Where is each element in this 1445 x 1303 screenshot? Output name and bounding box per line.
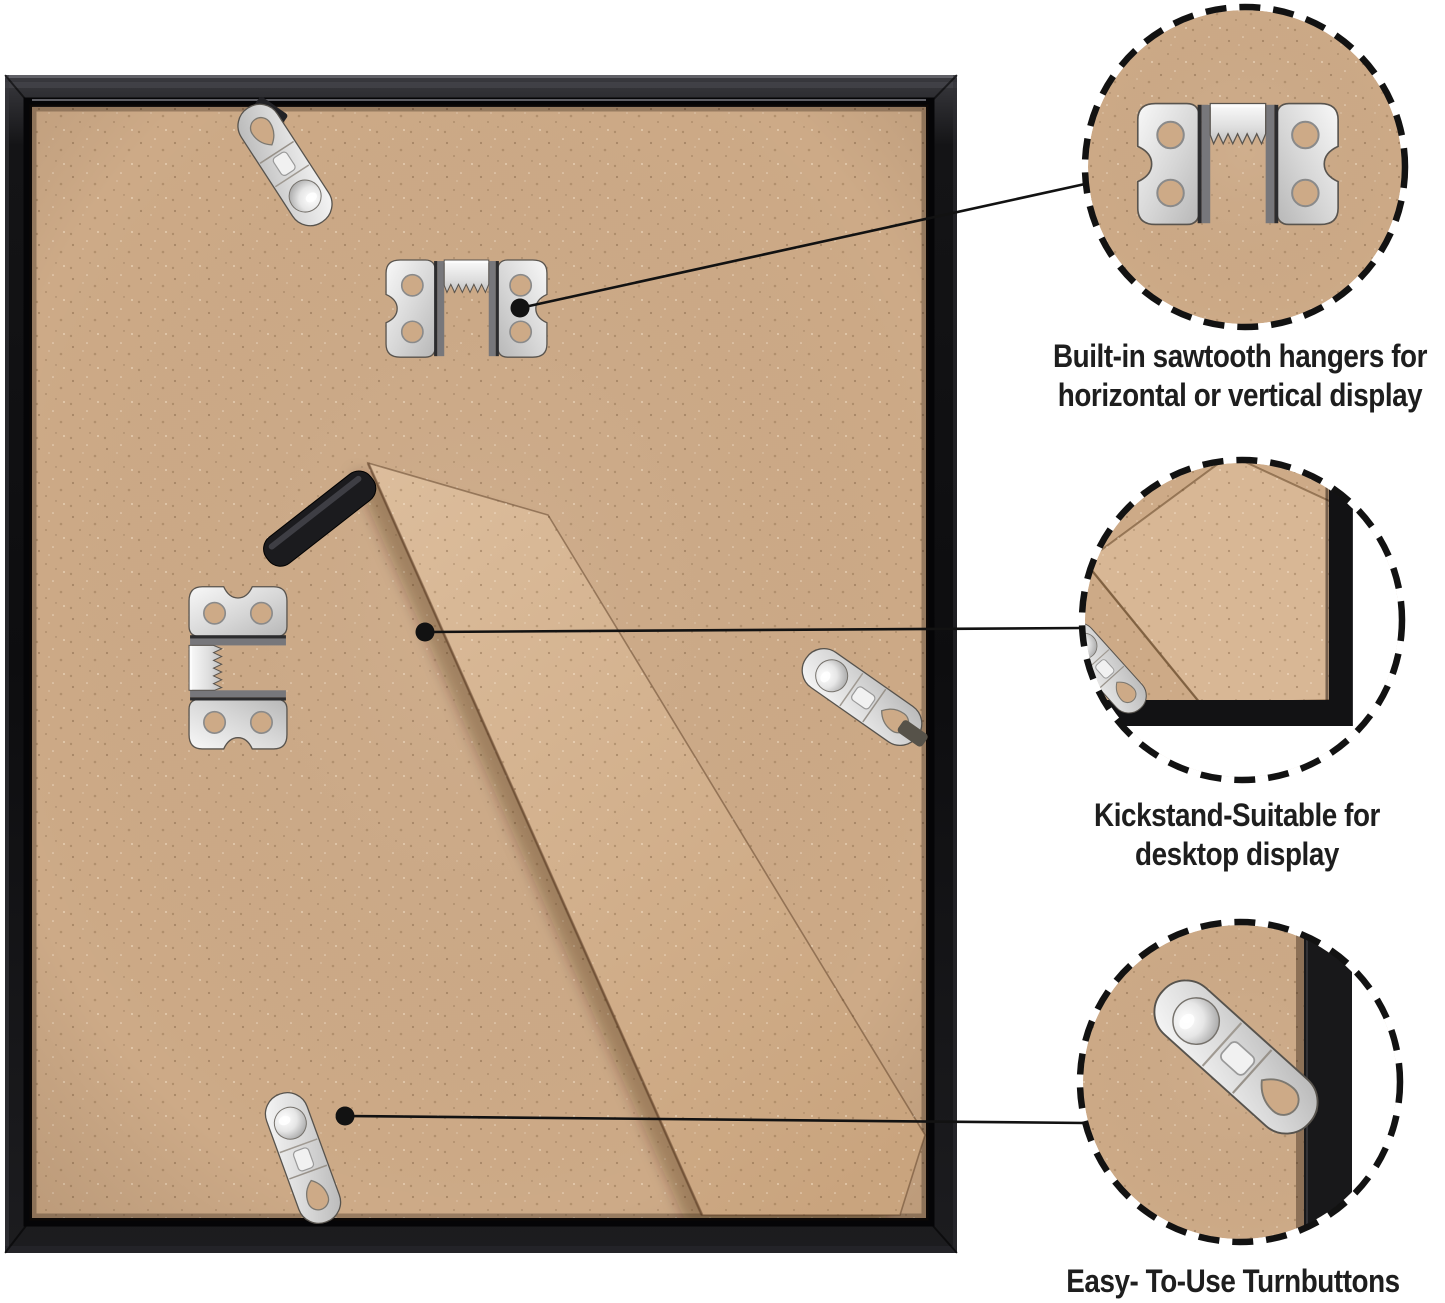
caption-turnbuttons: Easy- To-Use Turnbuttons (1016, 1262, 1445, 1301)
caption-kickstand: Kickstand-Suitable for desktop display (1020, 796, 1445, 874)
callout-dot-sawtooth (511, 299, 530, 318)
caption-line: desktop display (1020, 835, 1445, 874)
callout-dot-turnbuttons (336, 1107, 355, 1126)
caption-line: Built-in sawtooth hangers for (1023, 337, 1445, 376)
callout-dot-kickstand (416, 623, 435, 642)
caption-line: horizontal or vertical display (1023, 376, 1445, 415)
frame-back-photo (5, 75, 957, 1253)
caption-line: Kickstand-Suitable for (1020, 796, 1445, 835)
product-diagram-graphic (0, 0, 1445, 1303)
caption-sawtooth-hangers: Built-in sawtooth hangers for horizontal… (1023, 337, 1445, 415)
product-diagram: Built-in sawtooth hangers for horizontal… (0, 0, 1445, 1303)
caption-line: Easy- To-Use Turnbuttons (1016, 1262, 1445, 1301)
